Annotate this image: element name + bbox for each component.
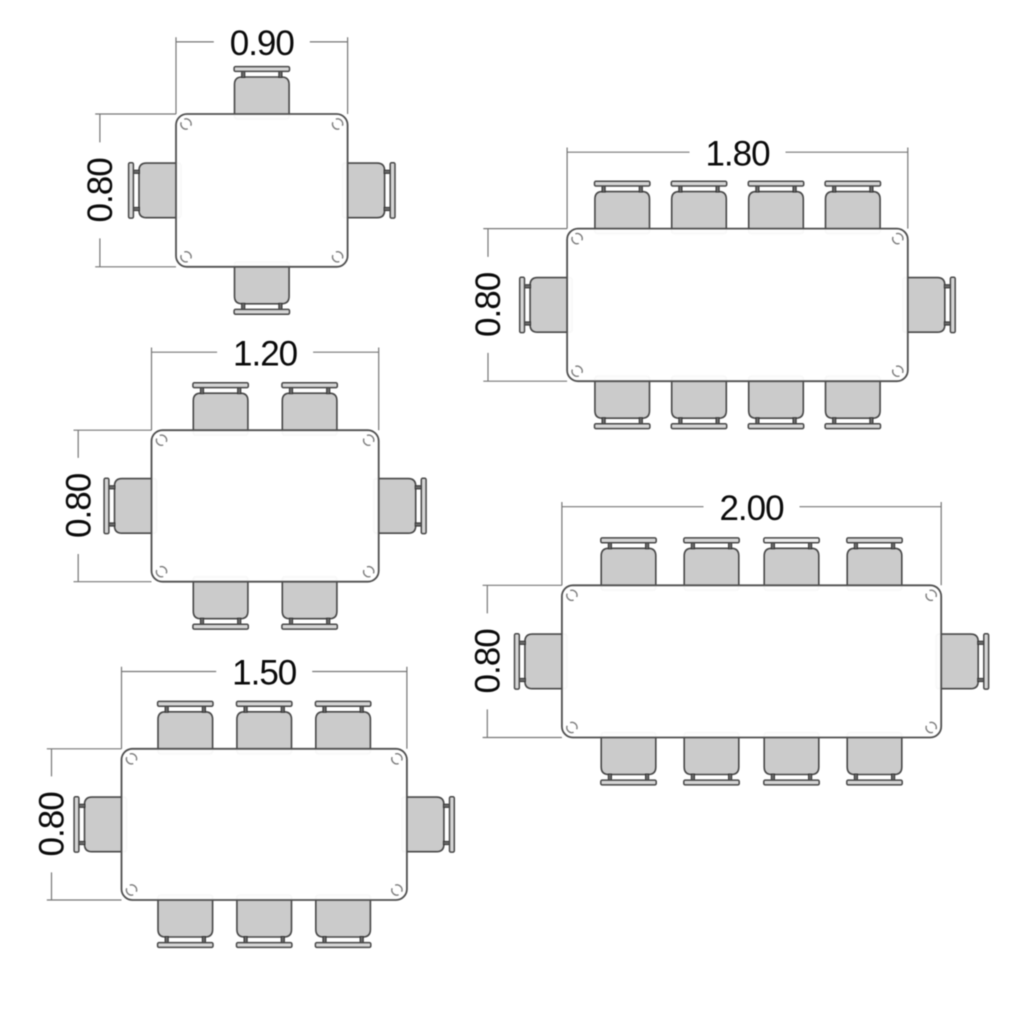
svg-text:0.90: 0.90	[230, 24, 295, 63]
svg-text:2.00: 2.00	[719, 489, 784, 528]
svg-text:1.80: 1.80	[705, 134, 770, 173]
svg-text:0.80: 0.80	[59, 473, 98, 538]
svg-text:0.80: 0.80	[33, 792, 72, 857]
svg-text:0.80: 0.80	[81, 158, 120, 223]
svg-text:1.20: 1.20	[233, 334, 298, 373]
svg-text:1.50: 1.50	[232, 654, 297, 693]
svg-text:0.80: 0.80	[469, 272, 508, 337]
svg-text:0.80: 0.80	[468, 629, 507, 694]
